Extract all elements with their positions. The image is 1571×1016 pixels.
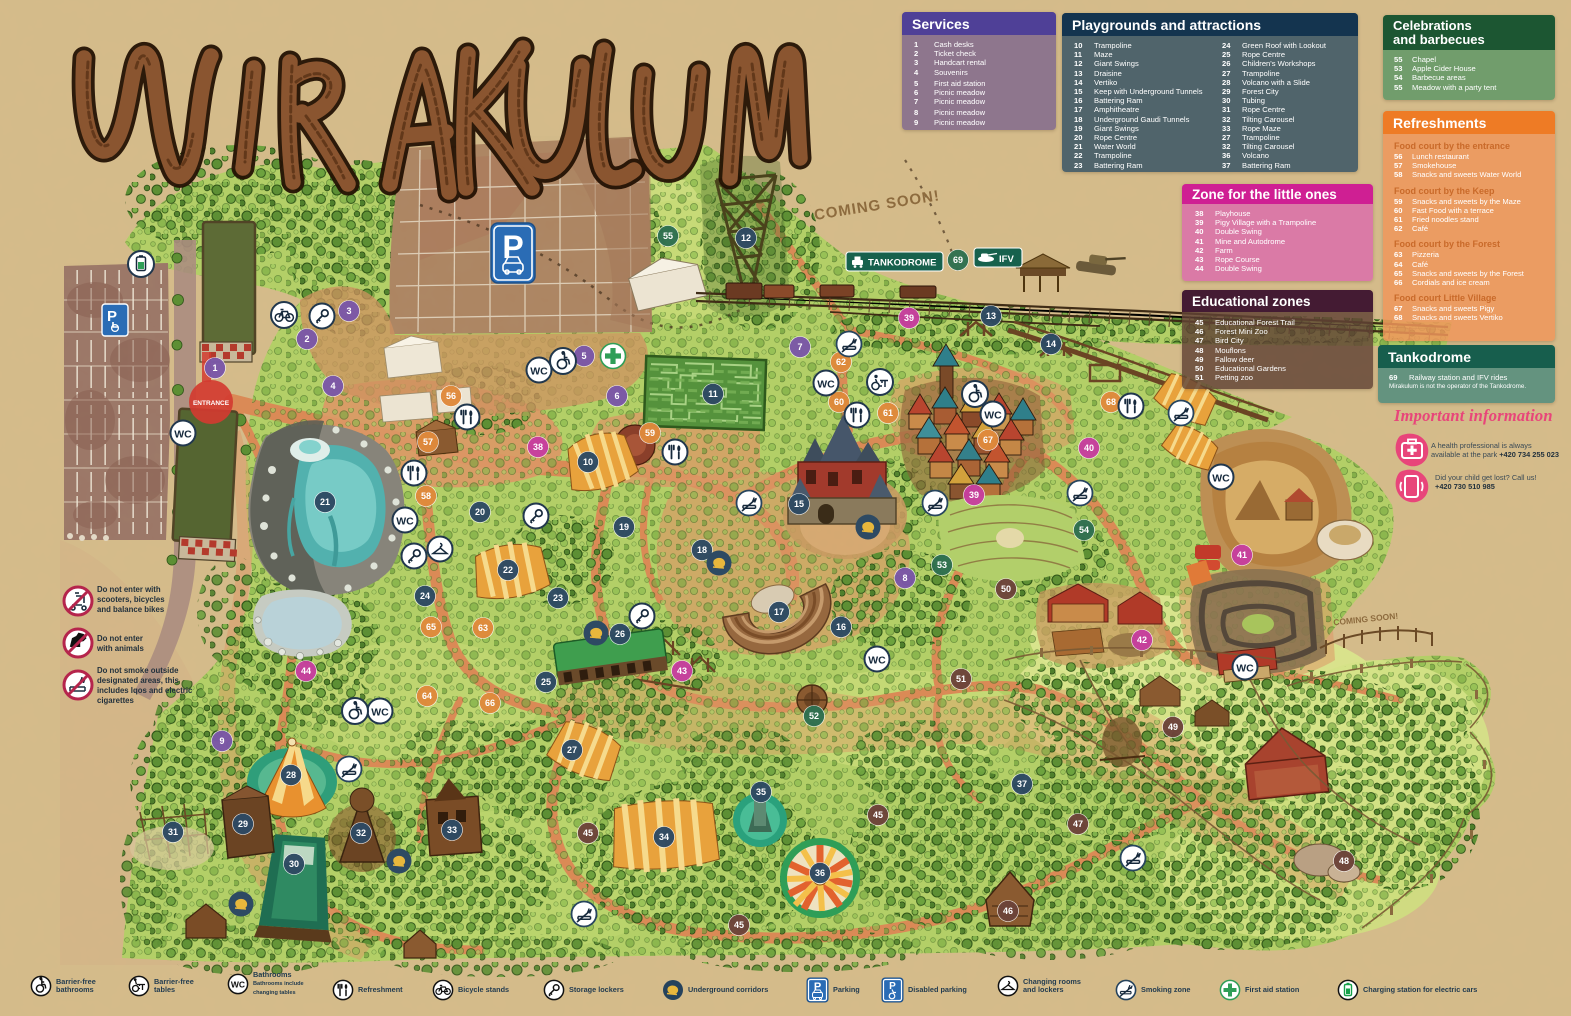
svg-text:45: 45 [873,810,883,820]
svg-text:WC: WC [174,428,192,440]
svg-text:12: 12 [741,233,751,243]
svg-text:23: 23 [553,593,563,603]
svg-text:58: 58 [421,491,431,501]
svg-text:15: 15 [794,499,804,509]
svg-text:9: 9 [219,736,224,746]
svg-text:66: 66 [485,698,495,708]
svg-text:55: 55 [663,231,673,241]
svg-text:42: 42 [1137,635,1147,645]
svg-text:41: 41 [1237,550,1247,560]
svg-text:22: 22 [503,565,513,575]
svg-text:69: 69 [953,255,963,265]
svg-text:54: 54 [1079,525,1089,535]
svg-text:45: 45 [734,920,744,930]
svg-text:P: P [814,981,821,993]
svg-text:40: 40 [1084,443,1094,453]
svg-text:63: 63 [478,623,488,633]
svg-text:P: P [502,229,523,265]
svg-text:WC: WC [1236,662,1254,674]
svg-text:5: 5 [581,351,586,361]
svg-text:4: 4 [330,381,335,391]
svg-text:WC: WC [231,980,245,990]
svg-text:6: 6 [614,391,619,401]
svg-text:35: 35 [756,787,766,797]
svg-text:21: 21 [320,497,330,507]
svg-text:47: 47 [1073,819,1083,829]
svg-text:39: 39 [969,490,979,500]
svg-text:WC: WC [1212,472,1230,484]
svg-text:64: 64 [422,691,432,701]
svg-text:WC: WC [396,515,414,527]
svg-text:60: 60 [834,397,844,407]
svg-text:67: 67 [983,435,993,445]
svg-text:24: 24 [420,591,430,601]
svg-text:56: 56 [446,391,456,401]
svg-text:45: 45 [583,828,593,838]
svg-text:2: 2 [304,334,309,344]
svg-text:48: 48 [1339,856,1349,866]
svg-text:IFV: IFV [999,254,1014,265]
svg-text:3: 3 [346,306,351,316]
svg-text:WC: WC [530,365,548,377]
svg-text:44: 44 [301,666,311,676]
svg-text:29: 29 [238,819,248,829]
svg-text:65: 65 [426,622,436,632]
svg-text:28: 28 [286,770,296,780]
svg-text:39: 39 [904,313,914,323]
svg-text:WC: WC [817,378,835,390]
svg-text:37: 37 [1017,779,1027,789]
svg-text:49: 49 [1168,722,1178,732]
svg-text:14: 14 [1046,339,1056,349]
svg-text:26: 26 [615,629,625,639]
svg-text:31: 31 [168,827,178,837]
svg-text:61: 61 [883,408,893,418]
svg-text:P: P [107,308,117,325]
svg-text:34: 34 [659,832,669,842]
svg-text:51: 51 [956,674,966,684]
svg-text:50: 50 [1001,584,1011,594]
svg-text:10: 10 [583,457,593,467]
svg-text:17: 17 [774,607,784,617]
svg-text:7: 7 [797,342,802,352]
svg-text:11: 11 [708,389,718,399]
svg-text:32: 32 [356,828,366,838]
svg-text:25: 25 [541,677,551,687]
svg-text:38: 38 [533,442,543,452]
svg-text:57: 57 [423,437,433,447]
svg-text:59: 59 [645,428,655,438]
svg-text:13: 13 [986,311,996,321]
svg-text:1: 1 [212,363,217,373]
svg-text:36: 36 [815,868,825,878]
svg-text:WC: WC [868,654,886,666]
svg-text:20: 20 [475,507,485,517]
svg-text:TANKODROME: TANKODROME [868,258,936,269]
svg-text:30: 30 [289,859,299,869]
svg-text:18: 18 [697,545,707,555]
svg-text:53: 53 [937,560,947,570]
svg-text:8: 8 [902,573,907,583]
svg-text:16: 16 [836,622,846,632]
svg-text:33: 33 [447,825,457,835]
svg-text:52: 52 [809,711,819,721]
svg-text:27: 27 [567,745,577,755]
svg-text:43: 43 [677,666,687,676]
svg-text:19: 19 [619,522,629,532]
svg-text:68: 68 [1106,397,1116,407]
svg-text:ENTRANCE: ENTRANCE [193,400,230,407]
svg-text:62: 62 [836,357,846,367]
svg-text:WC: WC [371,706,389,718]
svg-text:WC: WC [984,409,1002,421]
svg-text:46: 46 [1003,906,1013,916]
